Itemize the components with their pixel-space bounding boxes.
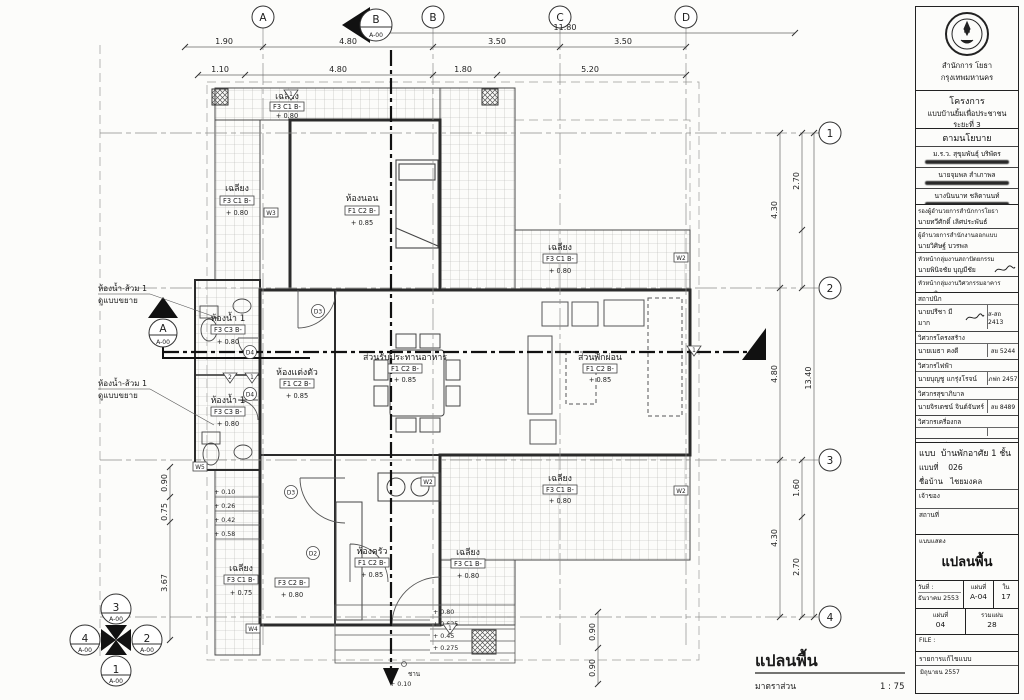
svg-text:+ 0.80: + 0.80	[226, 209, 248, 217]
approval-title: หัวหน้ากลุ่มงานวิศวกรรมอาคาร	[918, 278, 1016, 288]
model-no-value: 026	[948, 463, 963, 472]
dim: 4.30	[770, 529, 779, 547]
kitchen-counter	[336, 473, 440, 620]
step-level: + 0.10	[390, 681, 411, 688]
designer-license: ภฟก 2457	[987, 372, 1018, 385]
grid-row-3: 3	[827, 455, 834, 467]
door-tag: D4	[246, 393, 254, 399]
svg-text:ห้องแต่งตัว: ห้องแต่งตัว	[276, 367, 318, 378]
svg-text:F3 C3 B-: F3 C3 B-	[214, 408, 243, 416]
wall-type-flag: 1	[250, 375, 254, 381]
step-level: + 0.275	[433, 645, 458, 652]
designers-section: สถาปนิก นายปรีชา มีมาก ส-สถ 2413 วิศวกรโ…	[916, 293, 1018, 443]
designer-name: นายจิรเดชน์ จินต์จันทร์	[918, 401, 984, 412]
svg-text:เฉลียง: เฉลียง	[548, 242, 572, 253]
revision-section: รายการแก้ไขแบบ มิถุนายน 2557	[916, 652, 1018, 682]
file-label: FILE :	[919, 637, 935, 644]
of-value: 17	[994, 592, 1018, 601]
svg-text:+ 0.85: + 0.85	[351, 219, 373, 227]
designer-license	[987, 428, 1018, 436]
owner-label: เจ้าของ	[919, 492, 940, 500]
designer-row: วิศวกรโครงสร้าง นายเมธา คงดี สย 5244	[916, 331, 1018, 359]
window-tag: W3	[266, 211, 276, 217]
total-cell: รวมแผ่น 28	[966, 609, 1018, 634]
grid-row-2: 2	[827, 283, 834, 295]
svg-text:F3 C1 B-: F3 C1 B-	[273, 103, 302, 111]
type-value: บ้านพักอาศัย 1 ชั้น	[941, 449, 1011, 459]
designer-license: สย 5244	[987, 344, 1018, 357]
approval-name: นายพินิจชัย บุญมีชัย	[918, 264, 976, 275]
svg-text:+ 0.75: + 0.75	[230, 589, 252, 597]
dim-right-overall: 13.40	[804, 367, 813, 390]
dim: 5.20	[581, 65, 599, 74]
key-right-num: 2	[144, 633, 151, 645]
designer-title: วิศวกรสุขาภิบาล	[916, 389, 1018, 399]
approvals-section: รองผู้อำนวยการสำนักการโยธา นายทวีศักดิ์ …	[916, 205, 1018, 293]
svg-text:+ 0.85: + 0.85	[394, 376, 416, 384]
date-sheet-section: วันที่ : ธันวาคม 2553 แผ่นที่ A-04 ใน 17	[916, 581, 1018, 609]
house-name-value: ไชยมงคล	[950, 477, 982, 486]
designer-title: วิศวกรไฟฟ้า	[916, 361, 1018, 371]
scale-value: 1 : 75	[880, 682, 905, 692]
room-utility-tag: F3 C2 B- + 0.80	[275, 578, 309, 599]
sheet-value: A-04	[964, 592, 993, 601]
dim: 3.50	[488, 37, 506, 46]
dim: 1.80	[454, 65, 472, 74]
wall-type-flag: 1	[289, 92, 293, 98]
door-tag: D3	[314, 310, 322, 316]
key-ref: A-00	[109, 616, 123, 623]
sheet2-cell: แผ่นที่ 04	[916, 609, 966, 634]
window-tag: W5	[195, 465, 205, 471]
window-tag: W4	[248, 627, 258, 633]
dim: 0.90	[588, 623, 597, 641]
svg-text:+ 0.80: + 0.80	[217, 420, 239, 428]
total-value: 28	[966, 620, 1018, 629]
type-label: แบบ	[919, 449, 935, 459]
designer-row: วิศวกรสุขาภิบาล นายจิรเดชน์ จินต์จันทร์ …	[916, 387, 1018, 415]
owner-row: เจ้าของ	[916, 490, 1018, 509]
room-kitchen: ห้องครัว F1 C2 B- + 0.85	[355, 546, 389, 579]
step-level: + 0.80	[433, 609, 454, 616]
total-label: รวมแผ่น	[966, 610, 1018, 620]
date-value: ธันวาคม 2553	[918, 592, 961, 603]
signature-squiggle	[994, 265, 1016, 274]
house-name-label: ชื่อบ้าน	[919, 477, 943, 486]
approval-title: ผู้อำนวยการสำนักงานออกแบบ	[918, 230, 1016, 240]
svg-text:ห้องครัว: ห้องครัว	[357, 546, 388, 557]
key-bottom-num: 1	[113, 664, 120, 676]
svg-text:+ 0.80: + 0.80	[276, 112, 298, 120]
project-name: แบบบ้านยิ้มเพื่อประชาชน ระยะที่ 3	[919, 109, 1015, 129]
section-b-ref: A-00	[369, 32, 383, 39]
svg-text:F3 C1 B-: F3 C1 B-	[546, 486, 575, 494]
svg-text:+ 0.85: + 0.85	[286, 392, 308, 400]
house-name-row: ชื่อบ้าน ไชยมงคล	[916, 475, 1018, 490]
door-swings	[238, 290, 440, 625]
approval-row: หัวหน้ากลุ่มงานวิศวกรรมอาคาร นายสุจิระ ผ…	[916, 276, 1018, 293]
revision-header: รายการแก้ไขแบบ	[916, 652, 1018, 666]
bma-seal-logo	[944, 10, 990, 58]
svg-text:F3 C3 B-: F3 C3 B-	[214, 326, 243, 334]
grid-bubbles-right: 1 2 3 4	[818, 122, 841, 628]
key-ref: A-00	[109, 678, 123, 685]
key-top-num: 3	[113, 602, 120, 614]
of-label: ใน	[994, 582, 1018, 592]
approval-row: รองผู้อำนวยการสำนักการโยธา นายทวีศักดิ์ …	[916, 205, 1018, 228]
scale-label: มาตราส่วน	[755, 682, 796, 692]
site-row: สถานที่	[916, 509, 1018, 529]
window-tag: W2	[676, 256, 686, 262]
policy-name: นายจุมพล สำเภาพล	[916, 167, 1018, 188]
dim: 1.10	[211, 65, 229, 74]
svg-text:F1 C2 B-: F1 C2 B-	[586, 365, 615, 373]
agency-line2: กรุงเทพมหานคร	[919, 72, 1015, 84]
svg-text:F1 C2 B-: F1 C2 B-	[348, 207, 377, 215]
window-tag: W2	[676, 489, 686, 495]
grid-row-4: 4	[827, 612, 834, 624]
svg-text:ส่วนรับประทานอาหาร: ส่วนรับประทานอาหาร	[363, 353, 447, 363]
dim: 4.80	[770, 365, 779, 383]
svg-text:ส่วนพักผ่อน: ส่วนพักผ่อน	[578, 353, 622, 363]
wall-type-flag: 2	[228, 375, 232, 381]
section-marker-a: A A-00	[148, 297, 178, 347]
designer-title: สถาปนิก	[916, 294, 1018, 304]
designer-row: สถาปนิก นายปรีชา มีมาก ส-สถ 2413	[916, 293, 1018, 331]
svg-text:+ 0.80: + 0.80	[217, 338, 239, 346]
approval-name: นายทวีศักดิ์ เลิศประพันธ์	[918, 216, 987, 227]
dining-table	[374, 334, 460, 432]
dim-top-overall: 11.80	[554, 23, 577, 32]
project-section: โครงการ แบบบ้านยิ้มเพื่อประชาชน ระยะที่ …	[916, 91, 1018, 129]
svg-text:F3 C1 B-: F3 C1 B-	[227, 576, 256, 584]
drawing-footer: แปลนพื้น มาตราส่วน 1 : 75	[755, 648, 905, 692]
drawing-sheet: { "plan": { "grid_columns": {"a":"A","b_…	[0, 0, 1024, 700]
dim: 4.30	[770, 201, 779, 219]
model-no-label: แบบที่	[919, 463, 939, 472]
callout-bath2-note: ดูแบบขยาย	[98, 391, 138, 401]
house-type-row: แบบ บ้านพักอาศัย 1 ชั้น	[916, 443, 1018, 461]
room-living: ส่วนพักผ่อน F1 C2 B- + 0.85	[578, 353, 622, 384]
callout-bath1-name: ห้องน้ำ-ส้วม 1	[98, 282, 147, 293]
shows-value: แปลนพื้น	[916, 547, 1018, 576]
svg-text:+ 0.80: + 0.80	[281, 591, 303, 599]
dim: 1.60	[792, 479, 801, 497]
svg-text:เฉลียง: เฉลียง	[456, 547, 480, 558]
policy-name-text: ม.ร.ว. สุขุมพันธุ์ บริพัตร	[916, 148, 1018, 159]
revision-date: มิถุนายน 2557	[916, 666, 1018, 678]
svg-text:F1 C2 B-: F1 C2 B-	[283, 380, 312, 388]
terrace-word: ชาน	[408, 671, 421, 678]
sheet-cell: แผ่นที่ A-04	[964, 581, 994, 608]
approval-name: นายวิศิษฐ์ บวรพล	[918, 240, 968, 251]
dim: 3.67	[160, 574, 169, 592]
svg-text:+ 0.85: + 0.85	[361, 571, 383, 579]
shows-section: แบบแสดง แปลนพื้น	[916, 535, 1018, 581]
svg-text:เฉลียง: เฉลียง	[225, 183, 249, 194]
dim: 4.80	[329, 65, 347, 74]
svg-text:F1 C2 B-: F1 C2 B-	[391, 365, 420, 373]
grid-bubbles-top: A B C D	[252, 6, 697, 28]
shows-label: แบบแสดง	[916, 535, 1018, 547]
step-level: + 0.26	[214, 503, 235, 510]
agency-section: สำนักการ โยธา กรุงเทพมหานคร	[916, 7, 1018, 91]
drawing-info-section: แบบ บ้านพักอาศัย 1 ชั้น แบบที่ 026 ชื่อบ…	[916, 443, 1018, 535]
door-tag: D4	[246, 351, 254, 357]
svg-text:F3 C1 B-: F3 C1 B-	[546, 255, 575, 263]
shows-label-text: แบบแสดง	[919, 538, 946, 545]
callout-bath2-name: ห้องน้ำ-ส้วม 1	[98, 377, 147, 388]
approval-row: หัวหน้ากลุ่มงานสถาปัตยกรรม นายพินิจชัย บ…	[916, 252, 1018, 276]
agency-line1: สำนักการ โยธา	[919, 60, 1015, 72]
approval-title: รองผู้อำนวยการสำนักการโยธา	[918, 206, 1016, 216]
room-dressing: ห้องแต่งตัว F1 C2 B- + 0.85	[276, 367, 318, 400]
dim: 1.90	[215, 37, 233, 46]
window-tag: W2	[423, 480, 433, 486]
signature-smudge	[925, 160, 1009, 164]
door-tag: D2	[309, 552, 317, 558]
dim: 2.70	[792, 172, 801, 190]
of-cell: ใน 17	[994, 581, 1018, 608]
key-ref: A-00	[140, 647, 154, 654]
section-b-label: B	[372, 14, 379, 26]
designer-name: นายปรีชา มีมาก	[918, 306, 963, 328]
step-level: + 0.45	[433, 633, 454, 640]
svg-text:F3 C1 B-: F3 C1 B-	[454, 560, 483, 568]
signature-squiggle	[965, 313, 985, 322]
designer-title: วิศวกรเครื่องกล	[916, 417, 1018, 427]
svg-text:+ 0.80: + 0.80	[549, 497, 571, 505]
sheet-count-section: แผ่นที่ 04 รวมแผ่น 28	[916, 609, 1018, 635]
svg-text:F3 C1 B-: F3 C1 B-	[223, 197, 252, 205]
dim: 0.90	[588, 659, 597, 677]
policy-name: นางนินนาท ชลิตานนท์	[916, 188, 1018, 205]
bed	[396, 160, 438, 248]
svg-text:เฉลียง: เฉลียง	[548, 473, 572, 484]
step-level: + 0.58	[214, 531, 235, 538]
svg-text:+ 0.80: + 0.80	[457, 572, 479, 580]
grid-col-a: A	[259, 12, 267, 24]
grid-col-d: D	[682, 12, 690, 24]
policy-name-text: นางนินนาท ชลิตานนท์	[916, 190, 1018, 201]
dim: 0.90	[160, 474, 169, 492]
policy-name-text: นายจุมพล สำเภาพล	[916, 169, 1018, 180]
dim: 2.70	[792, 558, 801, 576]
section-a-label: A	[159, 323, 167, 335]
file-section: FILE :	[916, 635, 1018, 652]
room-dining: ส่วนรับประทานอาหาร F1 C2 B- + 0.85	[363, 353, 447, 384]
designer-name: นายเมธา คงดี	[918, 345, 958, 356]
site-label: สถานที่	[919, 511, 939, 519]
key-marker: 3 A-00 4 A-00 2 A-00 1 A-00	[70, 594, 162, 686]
policy-section: ตามนโยบาย ม.ร.ว. สุขุมพันธุ์ บริพัตร นาย…	[916, 129, 1018, 205]
drawing-title: แปลนพื้น	[755, 648, 818, 670]
svg-text:+ 0.80: + 0.80	[549, 267, 571, 275]
approval-title: หัวหน้ากลุ่มงานสถาปัตยกรรม	[918, 254, 1016, 264]
sheet-label: แผ่นที่	[964, 582, 993, 592]
date-cell: วันที่ : ธันวาคม 2553	[916, 581, 964, 608]
room-bedroom: ห้องนอน F1 C2 B- + 0.85	[345, 193, 379, 227]
key-ref: A-00	[78, 647, 92, 654]
svg-text:F3 C2 B-: F3 C2 B-	[278, 579, 307, 587]
svg-text:+ 0.85: + 0.85	[589, 376, 611, 384]
svg-text:เฉลียง: เฉลียง	[229, 563, 253, 574]
date-label: วันที่ :	[918, 582, 961, 592]
signature-smudge	[925, 181, 1009, 185]
title-block: สำนักการ โยธา กรุงเทพมหานคร โครงการ แบบบ…	[915, 6, 1019, 694]
designer-title: วิศวกรโครงสร้าง	[916, 333, 1018, 343]
svg-text:F1 C2 B-: F1 C2 B-	[358, 559, 387, 567]
wall-type-flag: 1	[448, 626, 452, 632]
section-a-ref: A-00	[156, 339, 170, 346]
callout-bath1-note: ดูแบบขยาย	[98, 296, 138, 306]
designer-license: ส-สถ 2413	[987, 305, 1018, 329]
step-level: + 0.10	[214, 489, 235, 496]
key-left-num: 4	[82, 633, 89, 645]
project-header: โครงการ	[919, 92, 1015, 109]
sheet2-label: แผ่นที่	[916, 610, 965, 620]
approval-row: ผู้อำนวยการสำนักงานออกแบบ นายวิศิษฐ์ บวร…	[916, 228, 1018, 252]
grid-row-1: 1	[827, 128, 834, 140]
dim: 3.50	[614, 37, 632, 46]
policy-header: ตามนโยบาย	[916, 129, 1018, 146]
designer-license: สย 8489	[987, 400, 1018, 413]
dim: 0.75	[160, 503, 169, 521]
svg-text:ห้องนอน: ห้องนอน	[346, 193, 379, 204]
model-no-row: แบบที่ 026	[916, 461, 1018, 475]
step-level: + 0.42	[214, 517, 235, 524]
dim: 4.80	[339, 37, 357, 46]
floor-plan-canvas: A B C D B A-00 A A-00 1 2 3 4 11.80 1.	[0, 0, 910, 700]
wall-type-flag: 1	[692, 348, 696, 354]
sheet2-value: 04	[916, 620, 965, 629]
door-tag: D3	[287, 491, 295, 497]
designer-row: วิศวกรไฟฟ้า นายบุญชู แกรุ่งโรจน์ ภฟก 245…	[916, 359, 1018, 387]
designer-row: วิศวกรเครื่องกล	[916, 415, 1018, 438]
policy-name: ม.ร.ว. สุขุมพันธุ์ บริพัตร	[916, 146, 1018, 167]
designer-name: นายบุญชู แกรุ่งโรจน์	[918, 373, 977, 384]
grid-col-b: B	[429, 12, 436, 24]
